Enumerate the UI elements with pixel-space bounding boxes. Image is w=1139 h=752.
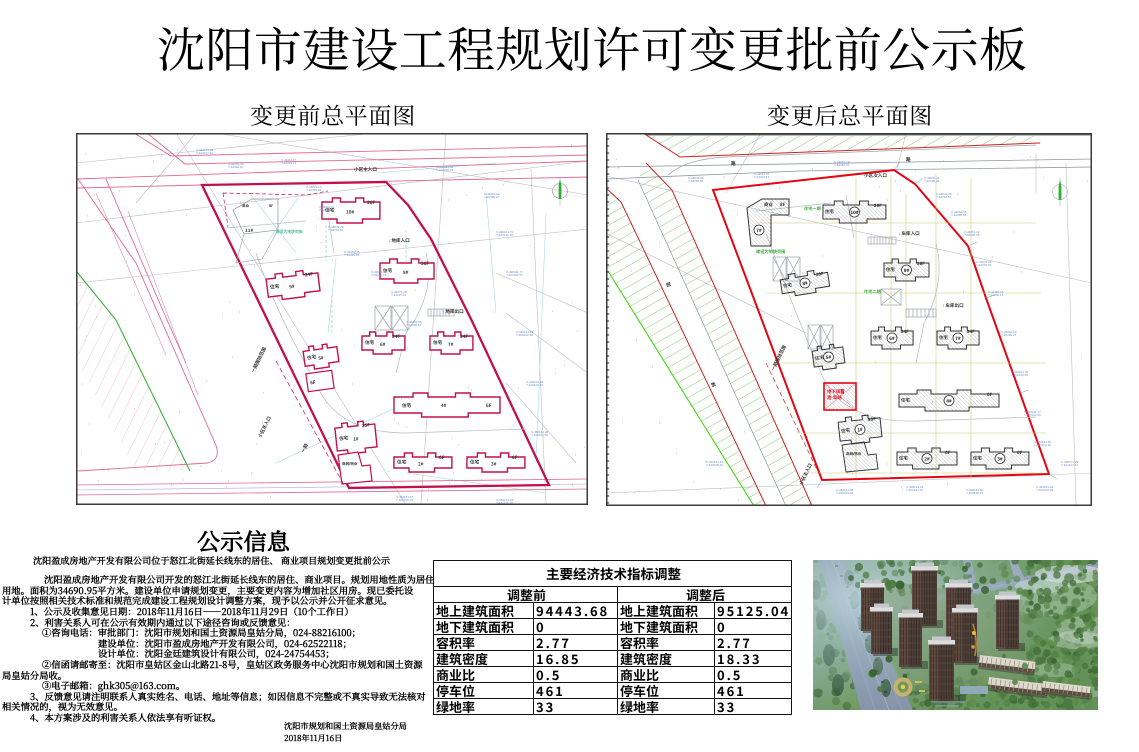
svg-text:X-430181.36Y-423318.54: X-430181.36Y-423318.54 — [966, 488, 984, 495]
svg-text:池·泵站: 池·泵站 — [827, 394, 842, 401]
svg-text:住宅: 住宅 — [365, 340, 375, 346]
svg-text:1#: 1# — [353, 436, 359, 443]
svg-text:住宅: 住宅 — [339, 435, 349, 442]
svg-text:X-43051.35Y-42335.65: X-43051.35Y-42335.65 — [344, 250, 360, 257]
svg-text:X-43071.49Y-42337.01: X-43071.49Y-42337.01 — [391, 290, 407, 297]
svg-text:住宅: 住宅 — [973, 456, 982, 462]
svg-text:↓ 地库入口: ↓ 地库入口 — [388, 238, 410, 244]
svg-text:住宅: 住宅 — [901, 398, 910, 404]
svg-text:8F: 8F — [780, 202, 786, 208]
svg-text:24F: 24F — [460, 334, 468, 340]
svg-text:X-430141.08Y-423314.02: X-430141.08Y-423314.02 — [531, 430, 549, 437]
svg-text:住宅一期: 住宅一期 — [804, 206, 821, 212]
svg-text:住宅: 住宅 — [433, 340, 443, 346]
svg-text:住宅: 住宅 — [397, 460, 407, 466]
svg-text:3#: 3# — [997, 456, 1003, 462]
svg-text:X-430151.15Y-423315.15: X-430151.15Y-423315.15 — [396, 495, 414, 502]
svg-text:6F: 6F — [486, 403, 492, 409]
svg-text:商网/物业: 商网/物业 — [846, 451, 862, 457]
svg-text:10#: 10# — [346, 210, 354, 216]
svg-text:X-43031.21Y-42333.39: X-43031.21Y-42333.39 — [319, 205, 335, 212]
svg-text:X-430131.01Y-423313.79: X-430131.01Y-423313.79 — [526, 380, 544, 387]
svg-text:住宅: 住宅 — [825, 209, 834, 215]
svg-text:住宅: 住宅 — [470, 460, 480, 466]
svg-text:6#: 6# — [380, 342, 386, 348]
svg-text:住宅: 住宅 — [886, 267, 895, 273]
svg-text:X-43061.42Y-42336.78: X-43061.42Y-42336.78 — [964, 230, 980, 237]
svg-text:路: 路 — [731, 160, 736, 167]
svg-text:住宅: 住宅 — [841, 428, 851, 435]
svg-text:4#: 4# — [441, 403, 447, 409]
svg-text:25F: 25F — [868, 416, 877, 423]
svg-text:X-43091.63Y-42339.27: X-43091.63Y-42339.27 — [1001, 330, 1017, 337]
svg-text:6F: 6F — [439, 455, 445, 461]
svg-text:24F: 24F — [967, 329, 975, 335]
svg-text:X-43081.56Y-42338.14: X-43081.56Y-42338.14 — [406, 320, 422, 327]
svg-text:7#: 7# — [955, 336, 961, 342]
svg-text:8#: 8# — [403, 270, 409, 276]
svg-text:25F: 25F — [362, 422, 371, 429]
svg-text:6F: 6F — [987, 392, 993, 398]
svg-text:X-43001.00Y-42330.00: X-43001.00Y-42330.00 — [688, 176, 704, 183]
svg-text:X-430111.77Y-423311.53: X-430111.77Y-423311.53 — [506, 270, 523, 277]
svg-text:X-430101.70Y-423310.40: X-430101.70Y-423310.40 — [1011, 370, 1029, 377]
svg-text:商业: 商业 — [242, 203, 250, 209]
svg-text:↓ 车库入口: ↓ 车库入口 — [898, 231, 920, 237]
svg-text:X-43071.49Y-42337.01: X-43071.49Y-42337.01 — [976, 260, 992, 267]
svg-text:X-43081.56Y-42338.14: X-43081.56Y-42338.14 — [988, 290, 1004, 297]
svg-text:26F: 26F — [367, 200, 375, 206]
svg-text:X-430101.70Y-423310.40: X-430101.70Y-423310.40 — [496, 230, 514, 237]
svg-text:X-43001.00Y-42330.00: X-43001.00Y-42330.00 — [228, 162, 244, 169]
svg-text:4#: 4# — [946, 398, 952, 404]
svg-text:7#: 7# — [756, 228, 762, 234]
svg-text:2#: 2# — [418, 462, 424, 468]
svg-text:住宅: 住宅 — [939, 335, 948, 341]
svg-text:10#: 10# — [850, 210, 858, 216]
svg-text:X-430171.29Y-423317.41: X-430171.29Y-423317.41 — [1061, 460, 1079, 467]
svg-text:X-43021.14Y-42332.26: X-43021.14Y-42332.26 — [834, 160, 850, 167]
svg-text:X-430131.01Y-423313.79: X-430131.01Y-423313.79 — [906, 485, 924, 492]
svg-text:X-430161.22Y-423316.28: X-430161.22Y-423316.28 — [1036, 485, 1054, 492]
svg-text:24F: 24F — [305, 271, 314, 278]
svg-text:X-43011.07Y-42331.13: X-43011.07Y-42331.13 — [754, 172, 770, 179]
svg-text:小区次入口: 小区次入口 — [864, 173, 887, 179]
svg-text:住宅二期: 住宅二期 — [864, 289, 881, 295]
svg-text:建设为地块范围: 建设为地块范围 — [756, 248, 785, 255]
svg-text:2#: 2# — [924, 456, 930, 462]
svg-text:X-430121.84Y-423312.66: X-430121.84Y-423312.66 — [516, 330, 534, 337]
svg-text:小区主入口: 小区主入口 — [354, 167, 377, 173]
svg-text:X-43011.07Y-42331.13: X-43011.07Y-42331.13 — [281, 158, 297, 165]
svg-text:24F: 24F — [901, 329, 909, 335]
svg-text:26F: 26F — [874, 203, 882, 209]
svg-text:X-43061.42Y-42336.78: X-43061.42Y-42336.78 — [371, 270, 387, 277]
svg-text:X-43091.63Y-42339.27: X-43091.63Y-42339.27 — [484, 192, 500, 199]
svg-text:建设为地块范围: 建设为地块范围 — [276, 229, 303, 235]
svg-text:X-43041.28Y-42334.52: X-43041.28Y-42334.52 — [328, 225, 344, 232]
svg-text:地下调蓄: 地下调蓄 — [827, 388, 845, 395]
svg-text:↑ 车库出口: ↑ 车库出口 — [942, 303, 964, 309]
svg-text:X-430141.08Y-423314.02: X-430141.08Y-423314.02 — [836, 488, 854, 495]
svg-text:路: 路 — [906, 156, 911, 163]
svg-text:X-430111.77Y-423311.53: X-430111.77Y-423311.53 — [1024, 410, 1041, 417]
svg-text:住宅: 住宅 — [270, 284, 280, 291]
svg-text:商网/物业: 商网/物业 — [342, 461, 358, 467]
svg-text:26F: 26F — [421, 261, 429, 267]
svg-text:X-430151.15Y-423315.15: X-430151.15Y-423315.15 — [706, 460, 724, 467]
svg-text:住宅: 住宅 — [899, 456, 908, 462]
svg-text:6#: 6# — [889, 336, 895, 342]
svg-text:↑ 地库出口: ↑ 地库出口 — [442, 309, 464, 315]
svg-text:24F: 24F — [392, 334, 400, 340]
svg-text:X-430171.29Y-423317.41: X-430171.29Y-423317.41 — [196, 148, 214, 155]
svg-text:X-43041.28Y-42334.52: X-43041.28Y-42334.52 — [936, 192, 952, 199]
svg-text:X-430181.36Y-423318.54: X-430181.36Y-423318.54 — [436, 165, 454, 172]
svg-text:住宅: 住宅 — [873, 335, 882, 341]
svg-text:3#: 3# — [491, 462, 497, 468]
svg-text:8F: 8F — [269, 204, 273, 209]
svg-text:X-430121.84Y-423312.66: X-430121.84Y-423312.66 — [1034, 440, 1052, 447]
svg-text:9#: 9# — [904, 268, 910, 274]
svg-text:26F: 26F — [917, 261, 925, 267]
svg-text:6F: 6F — [512, 455, 518, 461]
svg-text:6F: 6F — [1017, 450, 1023, 456]
svg-text:26F: 26F — [815, 271, 824, 278]
svg-text:X-43051.35Y-42335.65: X-43051.35Y-42335.65 — [951, 210, 967, 217]
svg-text:9#: 9# — [289, 284, 295, 291]
svg-text:7#: 7# — [448, 342, 454, 348]
svg-text:X-43021.14Y-42332.26: X-43021.14Y-42332.26 — [306, 185, 322, 192]
svg-text:6F: 6F — [945, 450, 951, 456]
svg-text:商业: 商业 — [764, 202, 773, 208]
svg-text:1#: 1# — [857, 427, 863, 434]
svg-text:住宅: 住宅 — [402, 403, 412, 409]
svg-text:X-43031.21Y-42333.39: X-43031.21Y-42333.39 — [924, 176, 940, 183]
svg-text:11#: 11# — [245, 228, 253, 234]
